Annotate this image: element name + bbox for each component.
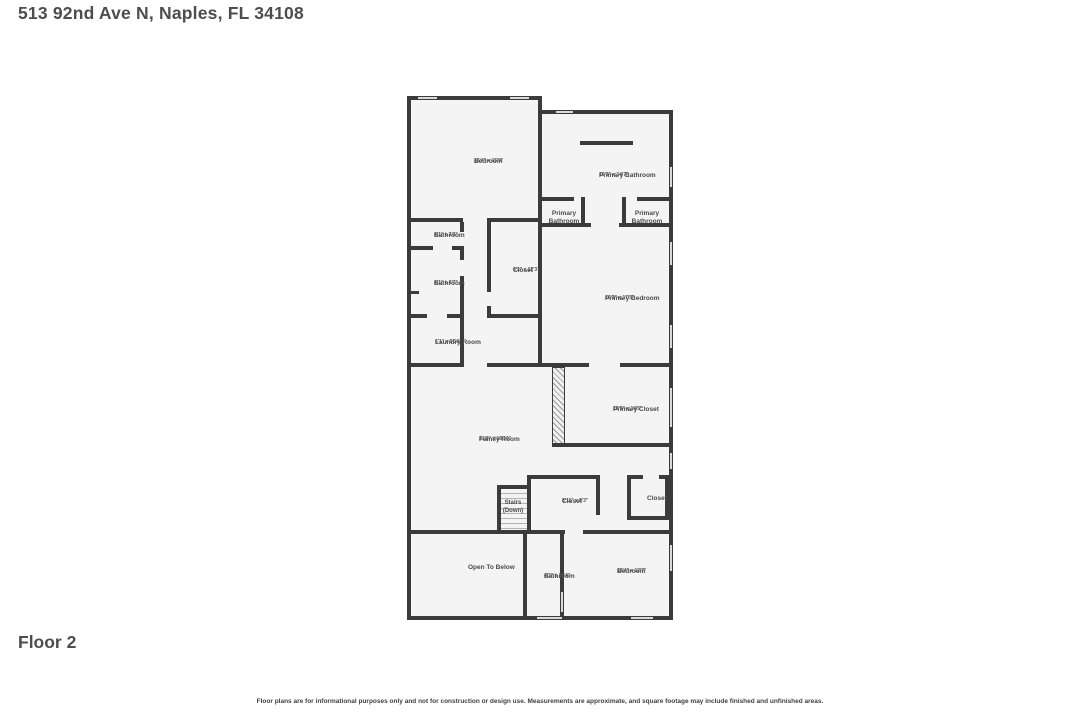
window bbox=[631, 616, 653, 620]
wall bbox=[487, 306, 491, 318]
window bbox=[669, 325, 673, 348]
floorplan-page: 513 92nd Ave N, Naples, FL 34108 Bedroom… bbox=[0, 0, 1080, 720]
wall bbox=[542, 363, 565, 367]
wall bbox=[565, 363, 589, 367]
window bbox=[669, 167, 673, 187]
floor-label: Floor 2 bbox=[18, 632, 76, 653]
wall bbox=[487, 222, 491, 292]
wall bbox=[560, 534, 564, 592]
floor-plan: Bedroom16'4" x 15'9" Primary Bathroom16'… bbox=[407, 96, 673, 620]
wall bbox=[523, 534, 527, 616]
wall bbox=[627, 475, 631, 520]
wall bbox=[527, 475, 600, 479]
wall bbox=[542, 197, 574, 201]
wall bbox=[659, 475, 669, 479]
wall bbox=[407, 530, 565, 534]
hatched-wall-chase bbox=[552, 367, 565, 447]
wall bbox=[627, 475, 643, 479]
wall bbox=[538, 96, 542, 367]
floor-area-left bbox=[407, 96, 542, 620]
window bbox=[537, 616, 562, 620]
wall bbox=[596, 475, 600, 515]
wall bbox=[487, 314, 542, 318]
wall bbox=[627, 516, 669, 520]
wall bbox=[583, 530, 669, 534]
window bbox=[669, 453, 673, 469]
wall bbox=[580, 141, 633, 145]
wall bbox=[552, 443, 669, 447]
wall bbox=[620, 363, 669, 367]
window bbox=[510, 96, 529, 100]
wall bbox=[407, 96, 411, 620]
wall bbox=[637, 197, 669, 201]
window bbox=[556, 110, 573, 114]
disclaimer-text: Floor plans are for informational purpos… bbox=[0, 698, 1080, 705]
wall bbox=[407, 218, 463, 222]
window bbox=[418, 96, 437, 100]
wall bbox=[497, 485, 530, 489]
wall bbox=[487, 218, 542, 222]
wall bbox=[460, 222, 464, 232]
wall bbox=[407, 363, 464, 367]
wall bbox=[452, 246, 464, 250]
page-title: 513 92nd Ave N, Naples, FL 34108 bbox=[18, 3, 304, 24]
window bbox=[669, 242, 673, 265]
window bbox=[560, 592, 564, 612]
wall bbox=[487, 363, 542, 367]
wall bbox=[527, 475, 531, 530]
window bbox=[669, 545, 673, 571]
window bbox=[669, 388, 673, 427]
